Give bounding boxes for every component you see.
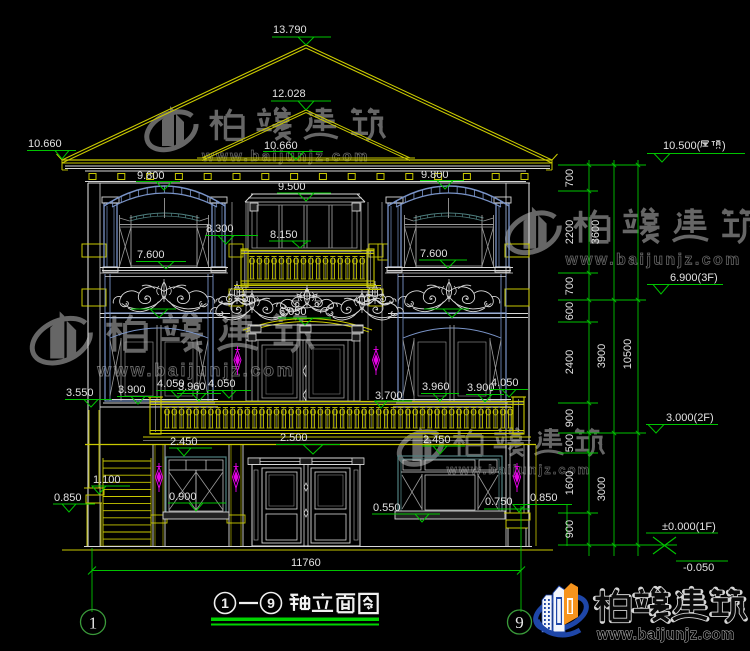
svg-text:2.450: 2.450 — [423, 434, 451, 446]
svg-text:10500: 10500 — [622, 339, 634, 370]
svg-text:600: 600 — [564, 302, 576, 320]
svg-text:11760: 11760 — [291, 557, 321, 569]
svg-text:1: 1 — [221, 595, 229, 611]
svg-text:12.028: 12.028 — [272, 88, 306, 100]
svg-text:1.100: 1.100 — [93, 474, 121, 486]
svg-text:3.700: 3.700 — [375, 390, 403, 402]
svg-text:700: 700 — [564, 169, 576, 187]
svg-text:7.600: 7.600 — [137, 249, 165, 261]
svg-text:0.550: 0.550 — [373, 502, 401, 514]
svg-text:1600: 1600 — [564, 471, 576, 495]
svg-text:9.800: 9.800 — [137, 170, 165, 182]
svg-text:10.500(: 10.500( — [663, 140, 701, 152]
svg-text:3.550: 3.550 — [66, 387, 94, 399]
svg-text:2.450: 2.450 — [170, 436, 198, 448]
svg-text:6.900(3F): 6.900(3F) — [670, 272, 718, 284]
svg-text:700: 700 — [564, 277, 576, 295]
svg-text:3.000(2F): 3.000(2F) — [666, 412, 714, 424]
svg-text:3600: 3600 — [590, 220, 602, 244]
svg-text:2.500: 2.500 — [280, 432, 308, 444]
svg-text:3900: 3900 — [596, 344, 608, 368]
svg-text:8.300: 8.300 — [206, 223, 234, 235]
svg-text:900: 900 — [564, 520, 576, 538]
svg-text:0.850: 0.850 — [530, 492, 558, 504]
svg-text:900: 900 — [564, 409, 576, 427]
svg-text:10.660: 10.660 — [28, 138, 62, 150]
svg-text:2200: 2200 — [564, 220, 576, 244]
svg-text:): ) — [722, 140, 726, 152]
svg-text:9.800: 9.800 — [421, 169, 449, 181]
svg-text:0.900: 0.900 — [169, 491, 197, 503]
svg-text:6.050: 6.050 — [279, 306, 307, 318]
svg-text:10.660: 10.660 — [264, 140, 298, 152]
svg-text:8.150: 8.150 — [270, 229, 298, 241]
svg-text:www.baijunjz.com: www.baijunjz.com — [596, 627, 735, 643]
svg-text:2400: 2400 — [564, 350, 576, 374]
svg-text:500: 500 — [564, 434, 576, 452]
svg-text:9: 9 — [267, 595, 275, 611]
svg-text:±0.000(1F): ±0.000(1F) — [662, 521, 716, 533]
svg-text:0.850: 0.850 — [54, 492, 82, 504]
svg-text:9: 9 — [515, 613, 524, 632]
svg-text:0.750: 0.750 — [485, 496, 513, 508]
svg-text:3000: 3000 — [596, 477, 608, 501]
svg-text:3.900: 3.900 — [118, 384, 146, 396]
svg-text:www.baijunjz.com: www.baijunjz.com — [96, 360, 295, 380]
svg-text:3.960: 3.960 — [178, 381, 206, 393]
svg-text:13.790: 13.790 — [273, 24, 307, 36]
svg-text:4.050: 4.050 — [491, 377, 519, 389]
svg-text:9.500: 9.500 — [278, 181, 306, 193]
svg-text:1: 1 — [89, 614, 98, 633]
svg-text:7.600: 7.600 — [420, 248, 448, 260]
svg-text:-0.050: -0.050 — [683, 562, 714, 574]
svg-text:3.960: 3.960 — [422, 381, 450, 393]
svg-text:www.baijunjz.com: www.baijunjz.com — [565, 251, 742, 268]
svg-text:4.050: 4.050 — [208, 378, 236, 390]
